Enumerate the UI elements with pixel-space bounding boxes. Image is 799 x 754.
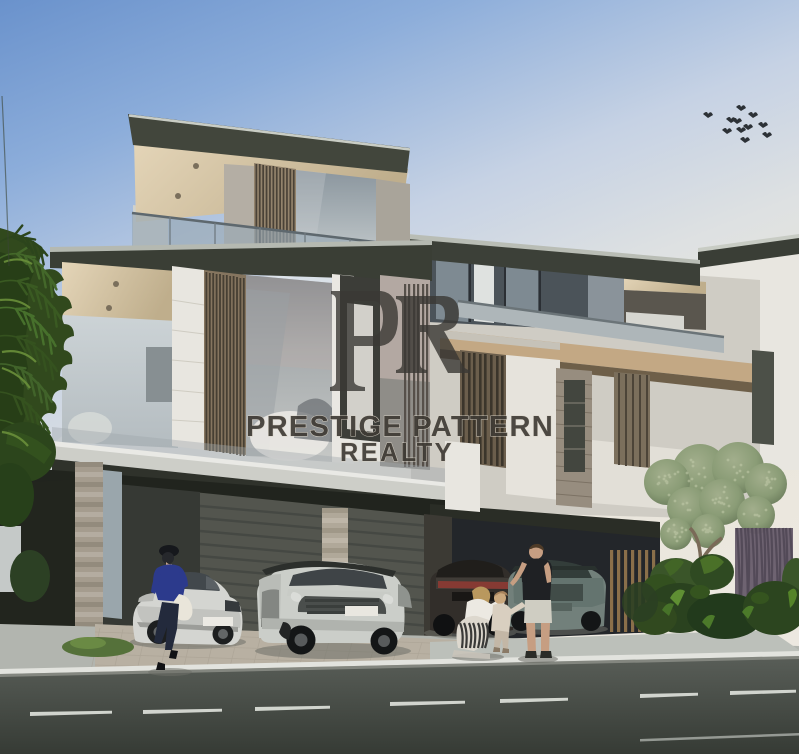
svg-text:REALTY: REALTY — [340, 437, 454, 467]
